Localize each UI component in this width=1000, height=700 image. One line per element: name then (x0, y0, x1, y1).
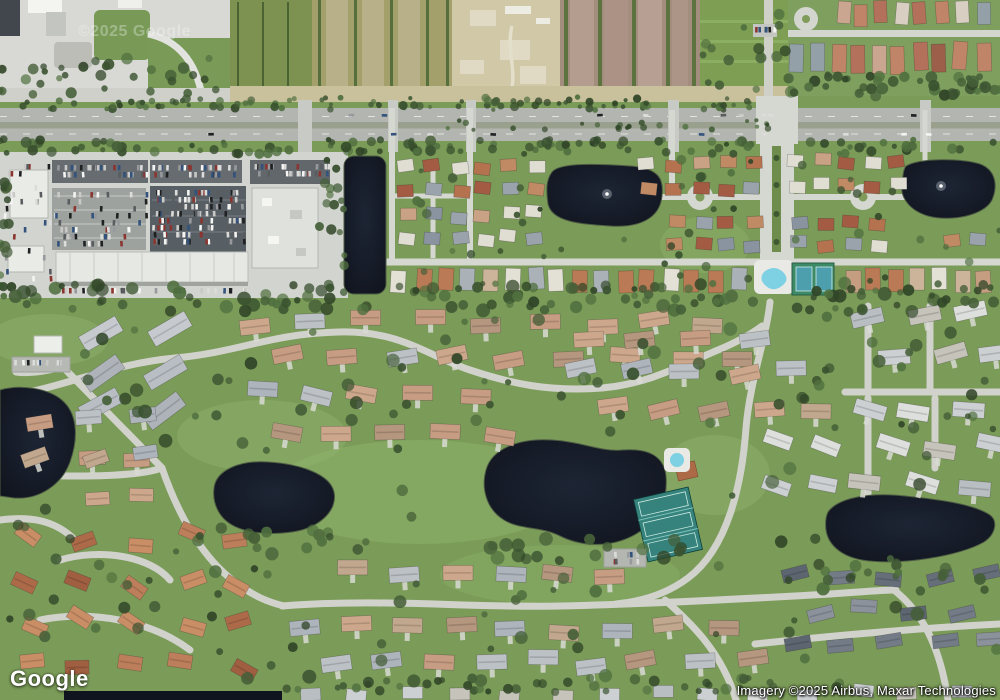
car (32, 276, 35, 282)
tree (71, 100, 77, 106)
car (156, 211, 159, 217)
car (111, 288, 114, 294)
car (12, 192, 15, 198)
tree (531, 551, 542, 562)
tree (589, 585, 601, 597)
car (171, 211, 174, 217)
house-roof (454, 185, 471, 198)
car (768, 114, 774, 117)
tree (413, 148, 420, 155)
house-roof (398, 232, 415, 246)
car (88, 241, 91, 247)
tree (701, 106, 708, 113)
car (113, 165, 116, 171)
tree (117, 103, 123, 109)
tree (243, 528, 255, 540)
tree (792, 303, 803, 314)
car (183, 232, 186, 238)
tree (968, 298, 979, 309)
tree (729, 150, 737, 158)
car (73, 206, 76, 212)
tree (375, 654, 387, 666)
car (28, 248, 31, 254)
house-roof (743, 182, 759, 195)
car (191, 204, 194, 210)
tree (102, 395, 112, 405)
house-roof (693, 182, 709, 195)
house-roof (129, 488, 153, 502)
industrial-building-white (28, 0, 62, 13)
tree (965, 258, 974, 267)
tree (524, 97, 530, 103)
car (205, 239, 208, 245)
car (154, 232, 157, 238)
car (69, 288, 72, 294)
tree (592, 377, 602, 387)
house-roof (422, 158, 439, 172)
car (187, 239, 190, 245)
tree (396, 683, 403, 690)
tree (709, 126, 715, 132)
car (195, 204, 198, 210)
community-entrance (756, 96, 798, 144)
tree (714, 561, 724, 571)
tree (173, 99, 179, 105)
tree (832, 305, 839, 312)
tree (716, 370, 727, 381)
car (96, 192, 99, 198)
strip-mall (56, 252, 248, 282)
tree (234, 149, 244, 159)
tree (452, 353, 463, 364)
car (130, 192, 133, 198)
car (911, 114, 917, 117)
tree (563, 148, 571, 156)
tree (211, 410, 221, 420)
car (213, 211, 216, 217)
tree (888, 188, 896, 196)
tree (584, 534, 595, 545)
tree (539, 532, 553, 546)
tree (42, 68, 48, 74)
tree (910, 607, 924, 621)
tree (326, 283, 335, 292)
car (270, 164, 273, 170)
car (267, 171, 270, 177)
tree (873, 355, 886, 368)
car (158, 239, 161, 245)
tree (575, 94, 580, 99)
tree (833, 289, 846, 302)
car (202, 172, 205, 178)
tree (324, 157, 330, 163)
house-roof (669, 215, 686, 228)
tree (319, 97, 324, 102)
tree (578, 283, 587, 292)
car (192, 197, 195, 203)
tree (91, 138, 100, 147)
tree (657, 282, 667, 292)
tree (774, 399, 785, 410)
car (184, 197, 187, 203)
tree (130, 73, 138, 81)
tree (481, 611, 487, 617)
tree (643, 100, 649, 106)
tree (515, 631, 528, 644)
tree (667, 242, 675, 250)
tree (419, 168, 424, 173)
car (64, 241, 67, 247)
tree (289, 281, 297, 289)
tree (46, 147, 56, 157)
tree (225, 377, 232, 384)
car (199, 225, 202, 231)
tree (434, 677, 442, 685)
car (265, 164, 268, 170)
car (758, 27, 761, 33)
tree (540, 305, 549, 314)
car (73, 165, 76, 171)
tree (302, 670, 316, 684)
tree (112, 141, 123, 152)
car (103, 165, 106, 171)
car (162, 211, 165, 217)
tree (775, 21, 784, 30)
retail-building (10, 170, 48, 218)
car (188, 165, 191, 171)
tree (214, 590, 222, 598)
tree (36, 80, 44, 88)
car (120, 241, 123, 247)
house-roof (913, 42, 928, 71)
tree (792, 236, 800, 244)
tree (488, 144, 497, 153)
tree (864, 568, 872, 576)
tree (455, 285, 462, 292)
tree (913, 478, 926, 491)
tree (498, 248, 504, 254)
car (176, 225, 179, 231)
house-roof (869, 218, 886, 231)
car (114, 288, 117, 294)
house-roof (640, 182, 657, 196)
tree (295, 404, 307, 416)
tree (824, 289, 833, 298)
tree (603, 688, 610, 695)
satellite-map-canvas[interactable]: ©2025 Google Google Imagery ©2025 Airbus… (0, 0, 1000, 700)
tree (765, 475, 779, 489)
tree (510, 125, 516, 131)
tree (637, 543, 649, 555)
tree (78, 62, 88, 72)
tree (492, 280, 498, 286)
tree (425, 145, 436, 156)
house-roof (425, 182, 442, 195)
car (218, 204, 221, 210)
house-roof (872, 46, 886, 74)
house-roof (827, 638, 854, 653)
tree (990, 426, 996, 432)
tree (350, 396, 363, 409)
tree (657, 551, 671, 565)
tree (707, 44, 715, 52)
tree (833, 72, 843, 82)
tree (934, 280, 941, 287)
tree (23, 609, 35, 621)
imagery-attribution: Imagery ©2025 Airbus, Maxar Technologies (737, 683, 996, 698)
tree (578, 105, 582, 109)
tree (586, 98, 594, 106)
car (258, 171, 261, 177)
house-roof (526, 232, 543, 246)
tree (811, 286, 821, 296)
tree (342, 378, 355, 391)
tree (790, 88, 798, 96)
tree (541, 137, 552, 148)
tree (965, 413, 971, 419)
car (183, 165, 186, 171)
car (211, 172, 214, 178)
house-roof (837, 156, 854, 170)
house-roof (891, 177, 907, 189)
tree (192, 413, 199, 420)
tree (279, 105, 286, 112)
google-logo[interactable]: Google (10, 666, 89, 692)
house-roof (747, 216, 764, 229)
house-roof (300, 688, 321, 700)
tree (40, 504, 51, 515)
tree (637, 338, 648, 349)
tree (578, 372, 591, 385)
house-roof (845, 238, 862, 251)
tree (140, 100, 146, 106)
tree (449, 248, 455, 254)
tree (854, 143, 864, 153)
tree (428, 105, 432, 109)
tree (867, 278, 873, 284)
car (243, 232, 246, 238)
tree (690, 299, 698, 307)
tree (729, 492, 735, 498)
tree (460, 99, 465, 104)
car (146, 192, 149, 198)
pond-upper-right (902, 160, 995, 219)
car (179, 225, 182, 231)
tree (71, 281, 79, 289)
car (200, 288, 203, 294)
tree (138, 405, 152, 419)
car (75, 227, 78, 233)
tree (681, 683, 688, 690)
car (630, 559, 633, 565)
tree (396, 283, 404, 291)
tree (774, 9, 785, 20)
tree (615, 410, 625, 420)
car (154, 172, 157, 178)
house-roof (890, 46, 905, 74)
tree (943, 244, 949, 250)
tree (814, 380, 825, 391)
tree (294, 686, 301, 693)
house-roof (718, 184, 735, 197)
car (201, 165, 204, 171)
tree (558, 572, 570, 584)
tree (870, 90, 881, 101)
car (164, 239, 167, 245)
tree (421, 268, 428, 275)
tree (470, 415, 482, 427)
car (159, 218, 162, 224)
tree (783, 627, 794, 638)
house-roof (935, 1, 950, 24)
tree (563, 678, 573, 688)
car (57, 360, 60, 366)
tree (389, 410, 398, 419)
tree (458, 148, 464, 154)
car (67, 234, 70, 240)
tree (362, 538, 369, 545)
tree (121, 53, 133, 65)
tree (705, 79, 712, 86)
clubhouse-northwest (34, 336, 62, 353)
tree (822, 312, 832, 322)
tree (337, 229, 343, 235)
tree (491, 551, 505, 565)
industrial-area (0, 0, 230, 97)
house-roof (811, 43, 825, 71)
car (100, 206, 103, 212)
car (189, 218, 192, 224)
highway-crossing (298, 100, 312, 152)
car (6, 269, 9, 275)
tree (178, 147, 184, 153)
tree (205, 55, 212, 62)
tree (800, 394, 810, 404)
tree (721, 684, 732, 695)
tree (878, 287, 892, 301)
car (349, 114, 355, 117)
tree (104, 107, 109, 112)
car (90, 192, 93, 198)
tree (822, 83, 829, 90)
tree (21, 137, 32, 148)
tree (425, 135, 436, 146)
car (241, 204, 244, 210)
tree (745, 119, 749, 123)
car (60, 227, 63, 233)
car (158, 197, 161, 203)
car (27, 360, 30, 366)
tree (197, 147, 203, 153)
car (227, 225, 230, 231)
car (79, 199, 82, 205)
tree (947, 143, 957, 153)
house-roof (931, 44, 946, 72)
house-roof (837, 1, 852, 24)
tree (461, 318, 468, 325)
tree (857, 291, 866, 300)
tree (377, 639, 386, 648)
tree (572, 642, 583, 653)
tree (647, 346, 660, 359)
tree (555, 556, 564, 565)
car (765, 27, 768, 33)
tree (59, 283, 65, 289)
house-roof (397, 159, 414, 173)
house-roof (888, 270, 903, 292)
tree (528, 296, 539, 307)
car (117, 220, 120, 226)
car (200, 218, 203, 224)
tree (649, 676, 660, 687)
house-roof (452, 161, 469, 175)
house-roof (473, 210, 490, 223)
street (788, 30, 1000, 37)
tree (234, 101, 241, 108)
tree (4, 150, 10, 156)
tree (491, 108, 495, 112)
tree (402, 400, 411, 409)
tree (413, 580, 420, 587)
tree (481, 94, 489, 102)
car (296, 164, 299, 170)
tree (568, 629, 579, 640)
tree (848, 177, 854, 183)
tree (725, 96, 729, 100)
tree (676, 155, 686, 165)
car (194, 172, 197, 178)
car (166, 165, 169, 171)
tree (377, 148, 383, 154)
tree (216, 97, 224, 105)
tree (0, 293, 7, 300)
car (179, 211, 182, 217)
tree (339, 261, 348, 270)
tree (633, 94, 641, 102)
retail-building (8, 246, 44, 272)
tree (805, 305, 814, 314)
tree (326, 224, 336, 234)
car (100, 241, 103, 247)
tree (301, 621, 310, 630)
car (614, 552, 617, 558)
house-roof (400, 208, 416, 220)
tree (630, 674, 640, 684)
house-roof (529, 161, 545, 173)
tree (488, 541, 498, 551)
car (128, 213, 131, 219)
tree (505, 379, 511, 385)
tree (272, 146, 282, 156)
car (170, 225, 173, 231)
tree (119, 393, 131, 405)
tree (247, 99, 253, 105)
tree (576, 140, 583, 147)
car (314, 171, 317, 177)
car (100, 234, 103, 240)
car (738, 114, 744, 117)
tree (471, 128, 475, 132)
car (219, 165, 222, 171)
tree (661, 260, 668, 267)
car (128, 227, 131, 233)
car (130, 172, 133, 178)
tree (422, 209, 432, 219)
car (72, 227, 75, 233)
house-roof (452, 231, 469, 245)
tree (857, 304, 868, 315)
car (160, 172, 163, 178)
